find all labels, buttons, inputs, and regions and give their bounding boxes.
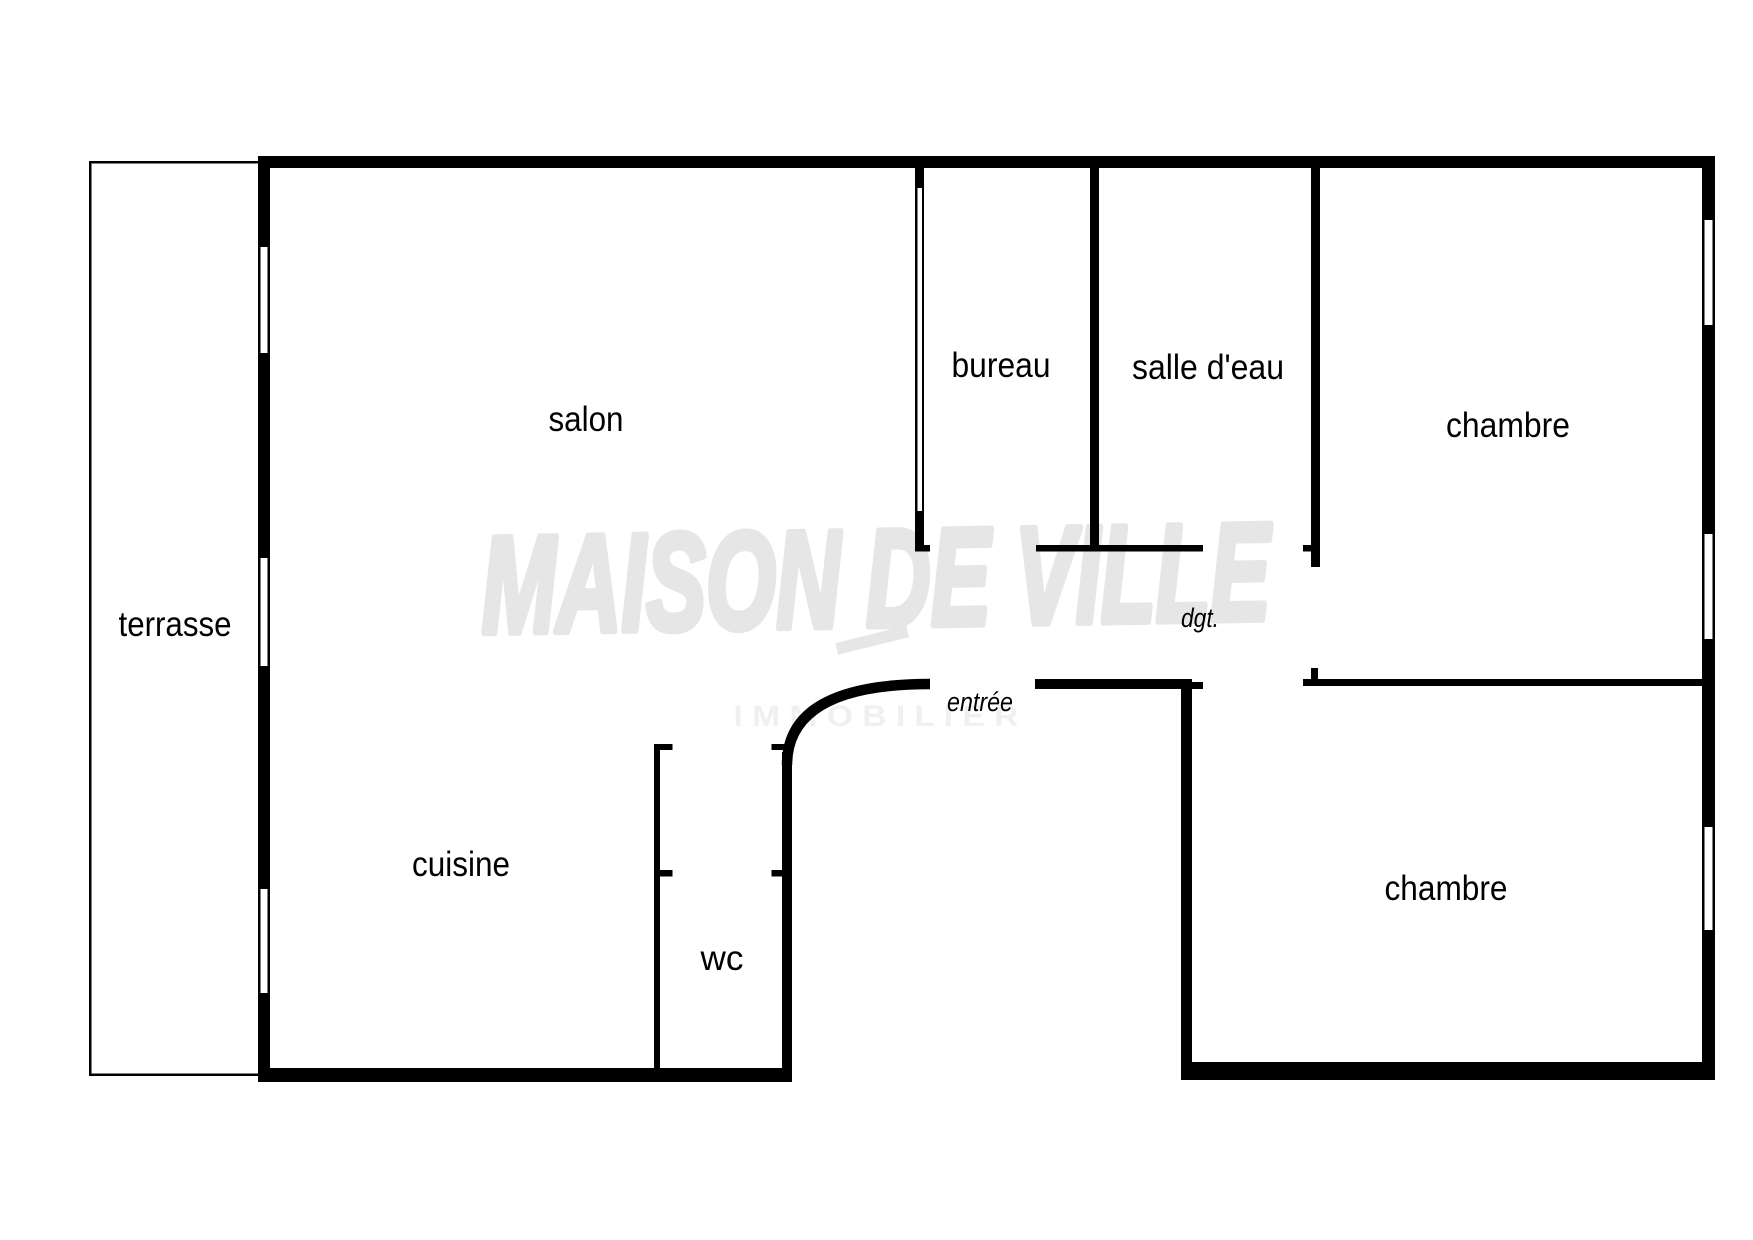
svg-text:dgt.: dgt. [1181,603,1219,633]
svg-text:salon: salon [549,400,624,439]
svg-text:entrée: entrée [947,687,1013,717]
svg-text:wc: wc [699,939,743,978]
svg-text:bureau: bureau [952,346,1051,385]
svg-text:cuisine: cuisine [412,845,510,884]
svg-text:chambre: chambre [1446,406,1570,445]
svg-text:terrasse: terrasse [119,605,232,644]
svg-text:salle d'eau: salle d'eau [1132,348,1284,387]
svg-text:chambre: chambre [1385,869,1508,908]
